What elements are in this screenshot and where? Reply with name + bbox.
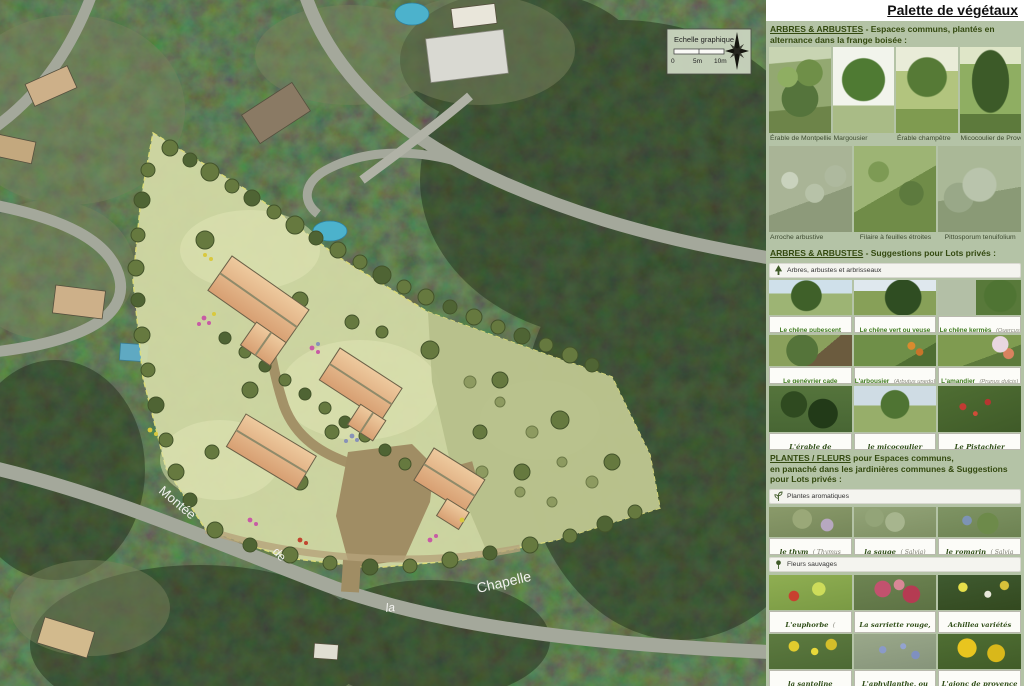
plant-label: L'arbousier (Arbutus unedo) [854, 367, 937, 384]
plant-card: Achillea variétés [938, 575, 1021, 633]
aromatics-row: le thym ( Thymus vulgaris) la sauge ( Sa… [769, 507, 1021, 555]
plant-label: Achillea variétés [938, 611, 1021, 633]
wildflowers-row2: la santoline (Santoline) L'aphyllanthe, … [769, 634, 1021, 686]
heading-commons: ARBRES & ARBUSTES - Espaces communs, pla… [770, 24, 1020, 45]
plant-label: Le chêne kermès (Quercus coccifera) [938, 316, 1021, 333]
plant-label: la santoline (Santoline) [769, 670, 852, 686]
plant-card: L'arbousier (Arbutus unedo) [854, 335, 937, 384]
plant-label: Le genévrier cade (Juniperus oxycedrus) [769, 367, 852, 384]
page-title: Palette de végétaux [766, 0, 1024, 21]
plant-label: Le Pistachier Lentisque (Pistacia Lentis… [938, 433, 1021, 450]
plant-photo [854, 575, 937, 610]
flower-icon [774, 559, 783, 570]
plant-card: la sauge ( Salvia) [854, 507, 937, 555]
scale-tick: 10m [714, 58, 727, 65]
plant-card: Margousier [833, 47, 895, 144]
plant-photo [896, 47, 958, 133]
plant-card: Pittosporum tenuifolium [938, 146, 1021, 243]
plant-card: Le Pistachier Lentisque (Pistacia Lentis… [938, 386, 1021, 450]
plant-label: L'érable de Montpellier (Acer monspessul… [769, 433, 852, 450]
plant-photo [769, 634, 852, 669]
plant-card: Arroche arbustive [769, 146, 852, 243]
plant-photo [854, 507, 937, 537]
plant-photo [833, 47, 895, 133]
plant-photo [769, 47, 831, 133]
plant-card: Le chêne pubescent (Quercus pubescens) [769, 280, 852, 333]
plant-photo [960, 47, 1022, 133]
private-grid-row3: L'érable de Montpellier (Acer monspessul… [769, 386, 1021, 450]
subsection-bar-aromatics: Plantes aromatiques [769, 489, 1021, 504]
wildflowers-row1: L'euphorbe ( Euphorbia) La sarriette rou… [769, 575, 1021, 633]
commons-shrubs-row: Arroche arbustive Filaire à feuilles étr… [769, 146, 1021, 243]
street-label: la [385, 600, 396, 615]
plant-photo [769, 335, 852, 366]
plant-label: le romarin ( Salvia rosmarinus) [938, 538, 1021, 555]
plant-card: le romarin ( Salvia rosmarinus) [938, 507, 1021, 555]
plant-card: La sarriette rouge, ou fleur d'Espagne, … [854, 575, 937, 633]
plant-card: Érable de Montpellier [769, 47, 831, 144]
plant-photo [769, 280, 852, 315]
plant-card: la santoline (Santoline) [769, 634, 852, 686]
plant-photo [854, 634, 937, 669]
plant-photo [938, 575, 1021, 610]
scale-box: Echelle graphique 0 5m 10m [667, 29, 751, 74]
private-grid-row2: Le genévrier cade (Juniperus oxycedrus) … [769, 335, 1021, 384]
plant-photo [769, 507, 852, 537]
plant-photo [769, 575, 852, 610]
scale-tick: 5m [693, 58, 702, 65]
scale-title: Echelle graphique [674, 35, 734, 44]
heading-private: ARBRES & ARBUSTES - Suggestions pour Lot… [770, 248, 1020, 259]
plant-card: L'aphyllanthe, ou œillet bleu de Montpel… [854, 634, 937, 686]
plant-photo [769, 386, 852, 432]
plant-photo [938, 280, 1021, 315]
plant-card: L'érable de Montpellier (Acer monspessul… [769, 386, 852, 450]
scale-tick: 0 [671, 58, 675, 65]
plant-photo [938, 386, 1021, 432]
plant-label: le thym ( Thymus vulgaris) [769, 538, 852, 555]
plant-photo [854, 335, 937, 366]
plan-sheet: Montée de la Chapelle Echelle graphique … [0, 0, 1024, 686]
private-grid-row1: Le chêne pubescent (Quercus pubescens) L… [769, 280, 1021, 333]
plant-label: Le chêne vert ou yeuse (Quercus ilex) [854, 316, 937, 333]
plant-photo [769, 146, 852, 232]
plant-photo [938, 335, 1021, 366]
plant-card: Érable champêtre [896, 47, 958, 144]
plant-label: L'ajonc de provence (Ulex parviflorus) [938, 670, 1021, 686]
plant-card: Le chêne vert ou yeuse (Quercus ilex) [854, 280, 937, 333]
subsection-bar-trees: Arbres, arbustes et arbrisseaux [769, 263, 1021, 278]
subsection-bar-wildflowers: Fleurs sauvages [769, 557, 1021, 572]
plant-card: Micocoulier de Provence [960, 47, 1022, 144]
tree-icon [774, 265, 783, 276]
plant-card: L'euphorbe ( Euphorbia) [769, 575, 852, 633]
commons-trees-row: Érable de Montpellier Margousier Érable … [769, 47, 1021, 144]
plant-palette-panel: Palette de végétaux ARBRES & ARBUSTES - … [766, 0, 1024, 686]
plant-card: L'amandier (Prunus dulcis) [938, 335, 1021, 384]
heading-flowers: PLANTES / FLEURS pour Espaces communs, e… [770, 453, 1020, 485]
plant-label: La sarriette rouge, ou fleur d'Espagne, … [854, 611, 937, 633]
plant-label: L'euphorbe ( Euphorbia) [769, 611, 852, 633]
plant-photo [938, 507, 1021, 537]
plant-photo [938, 146, 1021, 232]
plant-label: la sauge ( Salvia) [854, 538, 937, 555]
plant-label: L'amandier (Prunus dulcis) [938, 367, 1021, 384]
plant-photo [854, 146, 937, 232]
plant-photo [854, 280, 937, 315]
sprout-icon [774, 491, 783, 502]
site-plan-map: Montée de la Chapelle Echelle graphique … [0, 0, 766, 686]
plant-card: le micocoulier (Celtis) [854, 386, 937, 450]
plant-label: le micocoulier (Celtis) [854, 433, 937, 450]
aerial-map-area: Montée de la Chapelle Echelle graphique … [0, 0, 766, 686]
plant-card: L'ajonc de provence (Ulex parviflorus) [938, 634, 1021, 686]
plant-label: L'aphyllanthe, ou œillet bleu de Montpel… [854, 670, 937, 686]
plant-photo [854, 386, 937, 432]
plant-label: Le chêne pubescent (Quercus pubescens) [769, 316, 852, 333]
plant-card: le thym ( Thymus vulgaris) [769, 507, 852, 555]
plant-card: Le chêne kermès (Quercus coccifera) [938, 280, 1021, 333]
plant-photo [938, 634, 1021, 669]
plant-card: Filaire à feuilles étroites [854, 146, 937, 243]
plant-card: Le genévrier cade (Juniperus oxycedrus) [769, 335, 852, 384]
